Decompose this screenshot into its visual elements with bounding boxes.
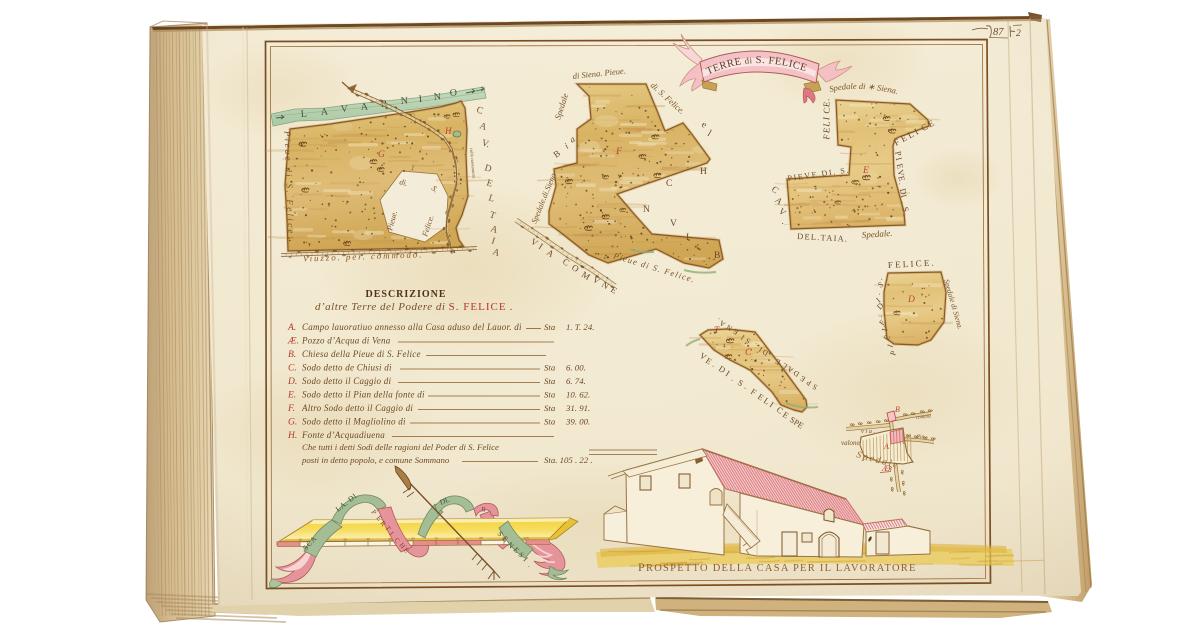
svg-text:Sta. 105 . 22 .: Sta. 105 . 22 .	[544, 455, 593, 465]
svg-text:Fonte d’Acquadiuena: Fonte d’Acquadiuena	[301, 430, 385, 440]
svg-text:Sta: Sta	[544, 376, 556, 386]
svg-text:Pozzo d’Acqua di Vena: Pozzo d’Acqua di Vena	[301, 336, 391, 346]
svg-text:Sta: Sta	[544, 322, 556, 332]
svg-text:D: D	[907, 295, 915, 305]
svg-text:Sodo detto il Pian della fonte: Sodo detto il Pian della fonte di	[302, 390, 425, 400]
svg-text:G.: G.	[288, 418, 297, 428]
svg-text:N: N	[643, 205, 650, 215]
svg-text:A.: A.	[287, 323, 296, 333]
svg-text:F.: F.	[287, 404, 295, 414]
svg-text:E: E	[862, 166, 869, 176]
svg-text:87: 87	[993, 27, 1004, 38]
svg-text:G: G	[378, 150, 385, 160]
svg-text:via.: via.	[861, 428, 877, 435]
svg-text:C: C	[666, 179, 672, 189]
svg-text:L: L	[300, 108, 307, 119]
svg-text:Sodo detto il Magliolino di: Sodo detto il Magliolino di	[302, 417, 406, 427]
svg-text:Sodo detto il Caggio di: Sodo detto il Caggio di	[302, 376, 392, 386]
svg-text:V: V	[670, 219, 677, 229]
svg-text:80: 80	[456, 536, 460, 540]
svg-text:B: B	[895, 405, 900, 414]
svg-text:C.: C.	[288, 364, 297, 374]
svg-text:posti in detto popolo, e comun: posti in detto popolo, e comune Sommano	[301, 455, 450, 465]
svg-text:E.: E.	[287, 391, 296, 401]
svg-text:O: O	[449, 87, 457, 99]
svg-text:N: N	[400, 95, 408, 107]
svg-text:valone: valone	[841, 439, 860, 447]
svg-text:Sta: Sta	[544, 363, 556, 373]
svg-text:Sodo detto de Chiusi di: Sodo detto de Chiusi di	[302, 363, 392, 373]
svg-text:1. T. 24.: 1. T. 24.	[566, 322, 594, 332]
svg-text:Che tutti i detti Sodi delle r: Che tutti i detti Sodi delle ragioni del…	[302, 442, 499, 452]
svg-text:Æ.: Æ.	[287, 337, 299, 347]
svg-text:6. 74.: 6. 74.	[566, 376, 586, 386]
svg-text:H.: H.	[287, 431, 297, 441]
svg-text:39. 00.: 39. 00.	[565, 417, 590, 427]
svg-text:I: I	[686, 233, 689, 243]
svg-text:70: 70	[434, 537, 438, 541]
svg-text:Spedale.: Spedale.	[861, 228, 892, 240]
svg-text:B.: B.	[288, 350, 296, 360]
svg-text:N: N	[433, 91, 441, 103]
svg-text:d’altre Terre del Podere di S.: d’altre Terre del Podere di S. FELICE .	[315, 301, 513, 313]
svg-text:B: B	[714, 251, 720, 261]
svg-text:Sta: Sta	[544, 403, 556, 413]
svg-text:Pie.: Pie.	[916, 435, 925, 440]
svg-text:31. 91.: 31. 91.	[565, 403, 590, 413]
svg-text:Sta: Sta	[544, 417, 556, 427]
svg-text:90: 90	[479, 536, 483, 540]
svg-text:30: 30	[343, 537, 347, 541]
svg-text:Altro Sodo detto il Caggio di: Altro Sodo detto il Caggio di	[301, 403, 413, 413]
svg-text:Sta: Sta	[544, 390, 556, 400]
svg-text:2: 2	[1016, 29, 1021, 39]
svg-text:H: H	[700, 167, 707, 177]
svg-text:C: C	[745, 348, 752, 358]
svg-text:PROSPETTO DELLA CASA PER IL LA: PROSPETTO DELLA CASA PER IL LAVORATORE	[638, 560, 917, 574]
svg-text:10. 62.: 10. 62.	[566, 390, 590, 400]
svg-text:6. 00.: 6. 00.	[566, 363, 586, 373]
svg-text:60: 60	[411, 537, 415, 541]
svg-text:A: A	[883, 442, 889, 451]
svg-text:Campo lauoratiuo annesso alla: Campo lauoratiuo annesso alla Casa aduso…	[302, 322, 522, 332]
svg-text:110: 110	[524, 536, 529, 540]
svg-text:H: H	[444, 126, 452, 136]
svg-text:40: 40	[366, 537, 370, 541]
svg-text:Chiesa della Pieue di S. Felic: Chiesa della Pieue di S. Felice	[302, 349, 421, 359]
svg-text:D.: D.	[287, 377, 297, 387]
svg-text:DESCRIZIONE: DESCRIZIONE	[365, 289, 446, 300]
svg-text:10: 10	[298, 538, 302, 542]
svg-text:F: F	[615, 147, 622, 157]
